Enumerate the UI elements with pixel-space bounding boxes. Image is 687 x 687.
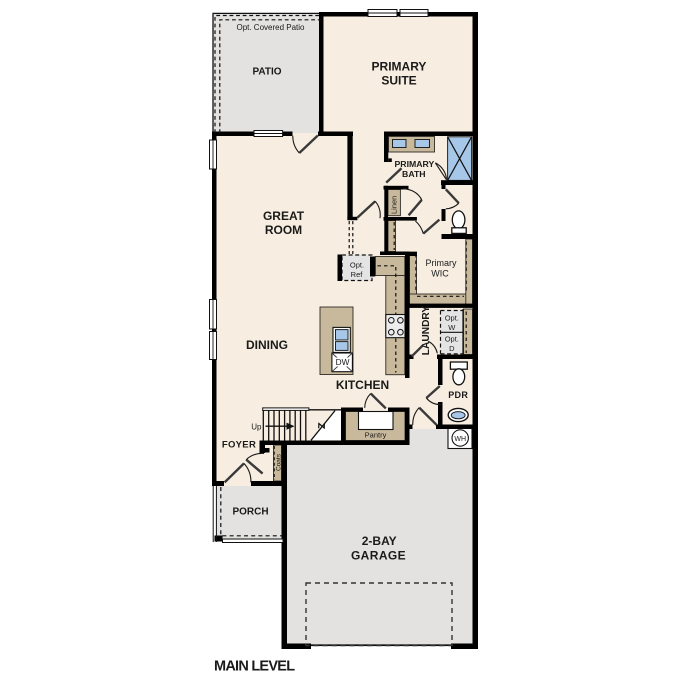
svg-text:PRIMARY: PRIMARY <box>395 159 435 169</box>
svg-text:SUITE: SUITE <box>381 74 416 88</box>
svg-text:Opt. Covered Patio: Opt. Covered Patio <box>236 23 305 32</box>
svg-text:PDR: PDR <box>448 390 468 400</box>
svg-text:Pantry: Pantry <box>365 431 387 440</box>
svg-text:GREAT: GREAT <box>263 209 305 223</box>
svg-text:Opt.: Opt. <box>350 261 364 270</box>
svg-text:BATH: BATH <box>402 169 425 179</box>
svg-text:Opt.: Opt. <box>445 335 459 344</box>
svg-text:WIC: WIC <box>431 269 449 279</box>
svg-text:Coats: Coats <box>276 453 283 471</box>
svg-text:D: D <box>449 344 455 353</box>
svg-text:Opt.: Opt. <box>445 314 459 323</box>
svg-text:DW: DW <box>336 357 350 367</box>
svg-text:PORCH: PORCH <box>232 507 268 518</box>
svg-text:ROOM: ROOM <box>265 223 302 237</box>
svg-text:GARAGE: GARAGE <box>351 549 406 563</box>
svg-text:Primary: Primary <box>426 258 457 268</box>
svg-text:FOYER: FOYER <box>222 440 256 451</box>
svg-text:KITCHEN: KITCHEN <box>336 378 389 392</box>
svg-text:PRIMARY: PRIMARY <box>372 60 427 74</box>
svg-text:LAUNDRY: LAUNDRY <box>421 306 432 356</box>
svg-text:DINING: DINING <box>246 338 288 352</box>
svg-text:Ref: Ref <box>351 270 364 279</box>
svg-text:W: W <box>448 323 456 332</box>
svg-text:MAIN LEVEL: MAIN LEVEL <box>214 659 295 675</box>
svg-text:Linen: Linen <box>390 196 399 214</box>
svg-text:2-BAY: 2-BAY <box>362 534 397 548</box>
svg-text:WH: WH <box>454 436 466 443</box>
svg-text:PATIO: PATIO <box>252 67 281 78</box>
svg-text:Up: Up <box>251 423 262 432</box>
